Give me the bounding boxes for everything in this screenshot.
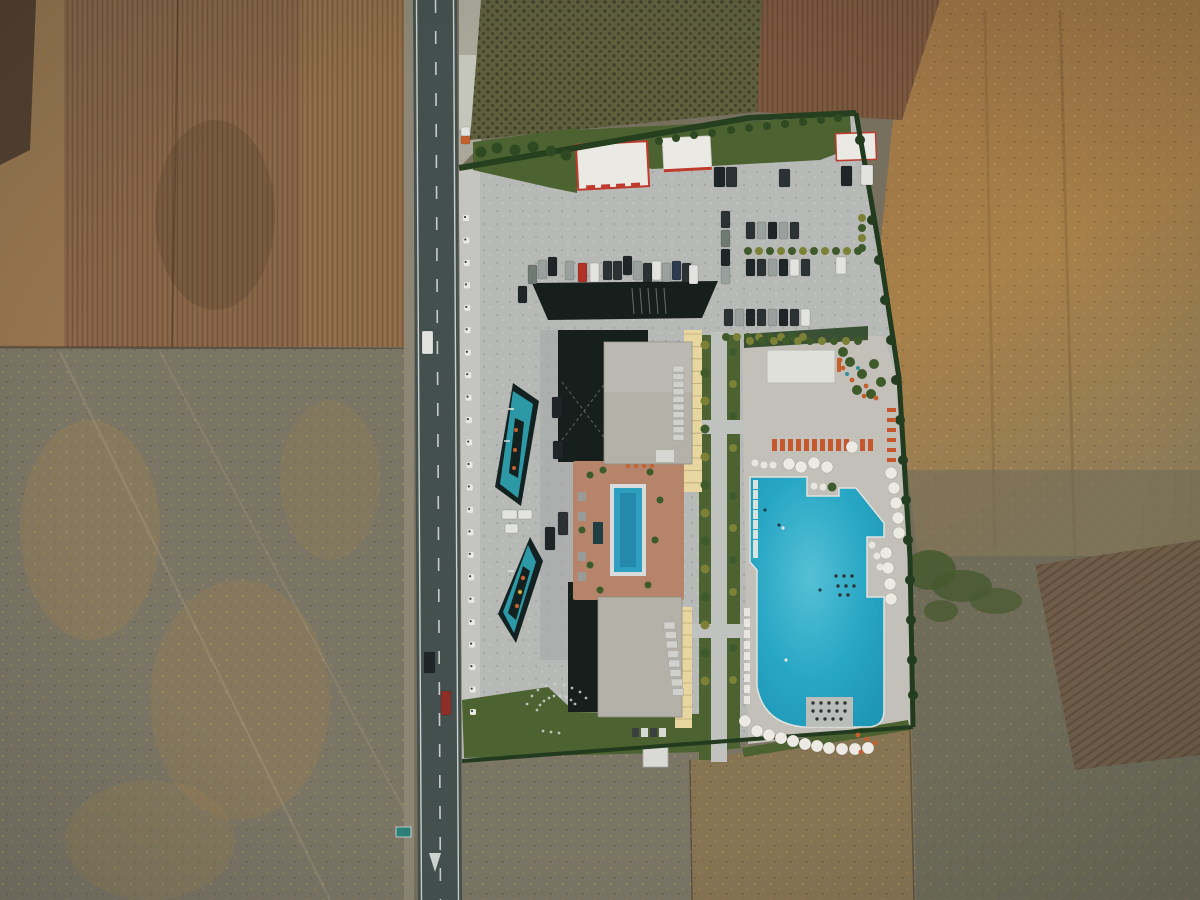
aerial-photo bbox=[0, 0, 1200, 900]
vignette bbox=[0, 0, 1200, 900]
aerial-scene bbox=[0, 0, 1200, 900]
